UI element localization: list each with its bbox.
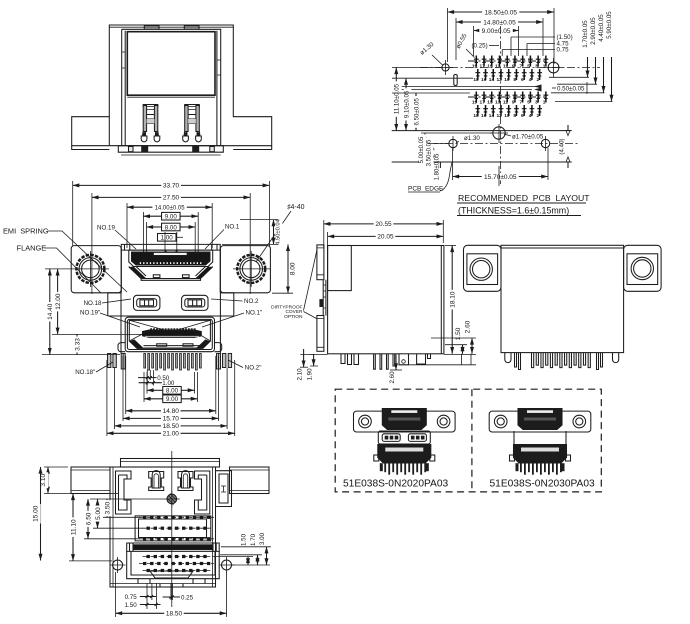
svg-text:15.70: 15.70	[163, 416, 180, 423]
svg-text:18: 18	[473, 113, 479, 119]
svg-text:18: 18	[473, 77, 479, 83]
svg-text:5.00±0.05: 5.00±0.05	[419, 136, 425, 163]
svg-text:(4.40): (4.40)	[559, 138, 566, 154]
svg-text:1.80±0.05: 1.80±0.05	[435, 153, 441, 180]
svg-text:4: 4	[529, 77, 532, 83]
svg-text:18.10: 18.10	[450, 291, 457, 308]
svg-text:17: 17	[480, 63, 486, 69]
svg-text:1.70: 1.70	[250, 533, 257, 546]
svg-text:ø1.30: ø1.30	[464, 135, 480, 142]
svg-text:6: 6	[521, 77, 524, 83]
svg-text:OPTION: OPTION	[284, 314, 303, 320]
svg-text:9.10±0.05: 9.10±0.05	[403, 90, 410, 118]
svg-text:6.50: 6.50	[85, 512, 92, 525]
svg-text:NO.19: NO.19	[97, 225, 115, 232]
svg-text:4: 4	[529, 113, 532, 119]
svg-text:8: 8	[513, 77, 516, 83]
svg-text:♯4-40: ♯4-40	[287, 204, 305, 211]
svg-text:14.80±0.05: 14.80±0.05	[483, 19, 516, 26]
svg-text:33.70: 33.70	[163, 183, 180, 190]
svg-text:FLANGE: FLANGE	[17, 244, 47, 253]
svg-text:2: 2	[537, 113, 540, 119]
svg-text:0.75: 0.75	[557, 47, 570, 54]
svg-text:NO.1": NO.1"	[246, 310, 263, 317]
svg-text:3.50: 3.50	[104, 501, 111, 514]
svg-text:15.70±0.05: 15.70±0.05	[484, 174, 517, 181]
svg-text:8.00: 8.00	[166, 388, 179, 395]
svg-text:5.00: 5.00	[95, 507, 102, 520]
svg-text:17: 17	[480, 99, 486, 105]
svg-text:2: 2	[537, 77, 540, 83]
svg-text:14.80: 14.80	[163, 408, 180, 415]
svg-text:14: 14	[489, 77, 495, 83]
svg-text:NO.1: NO.1	[225, 224, 240, 231]
svg-text:11: 11	[503, 63, 508, 69]
svg-text:1.70±0.05: 1.70±0.05	[582, 20, 589, 48]
svg-text:NO.19": NO.19"	[80, 310, 100, 317]
svg-text:3.10: 3.10	[40, 474, 47, 487]
svg-text:19: 19	[472, 99, 478, 105]
svg-text:21.00: 21.00	[163, 431, 180, 438]
svg-text:1.90: 1.90	[307, 368, 314, 381]
svg-text:10: 10	[504, 77, 510, 83]
svg-text:11.10: 11.10	[70, 519, 77, 535]
svg-text:7: 7	[520, 63, 523, 69]
svg-text:10: 10	[504, 113, 510, 119]
svg-text:8: 8	[513, 113, 516, 119]
svg-text:20.05: 20.05	[377, 234, 394, 241]
svg-text:6: 6	[521, 113, 524, 119]
svg-text:11: 11	[503, 99, 508, 105]
svg-text:13: 13	[495, 63, 501, 69]
svg-text:18.50±0.05: 18.50±0.05	[485, 9, 518, 16]
svg-text:NO.2": NO.2"	[245, 365, 262, 372]
svg-text:18.50: 18.50	[163, 423, 180, 430]
svg-text:15: 15	[487, 99, 493, 105]
svg-text:1: 1	[543, 99, 546, 105]
svg-text:5.90±0.05: 5.90±0.05	[606, 11, 613, 39]
svg-text:2.60: 2.60	[389, 371, 396, 384]
svg-text:1.50: 1.50	[241, 533, 248, 546]
svg-text:4.40±0.05: 4.40±0.05	[598, 14, 605, 42]
svg-text:15.00: 15.00	[33, 505, 40, 522]
svg-text:9.00±0.05: 9.00±0.05	[482, 28, 511, 35]
svg-text:9: 9	[512, 99, 515, 105]
svg-text:ø1.70±0.05: ø1.70±0.05	[512, 134, 544, 141]
svg-text:NO.18": NO.18"	[75, 369, 95, 376]
svg-text:27.50: 27.50	[163, 195, 180, 202]
svg-text:PCB EDGE: PCB EDGE	[408, 186, 444, 193]
svg-text:RECOMMENDED PCB LAYOUT: RECOMMENDED PCB LAYOUT	[458, 193, 590, 203]
svg-text:9: 9	[512, 63, 515, 69]
svg-text:11.10±0.05: 11.10±0.05	[394, 83, 401, 114]
svg-text:20.55: 20.55	[375, 221, 392, 228]
svg-text:2.90±0.05: 2.90±0.05	[590, 17, 597, 45]
svg-text:8.00: 8.00	[290, 262, 297, 275]
svg-text:0.25: 0.25	[181, 594, 194, 601]
svg-text:9.00: 9.00	[165, 214, 178, 221]
svg-text:2.60: 2.60	[465, 320, 472, 333]
svg-text:51E038S-0N2020PA03: 51E038S-0N2020PA03	[343, 479, 448, 490]
svg-text:12.00: 12.00	[55, 293, 62, 310]
svg-text:3: 3	[535, 63, 538, 69]
svg-text:51E038S-0N2030PA03: 51E038S-0N2030PA03	[490, 479, 595, 490]
svg-text:6.50±0.05: 6.50±0.05	[413, 98, 420, 126]
svg-text:7: 7	[520, 99, 523, 105]
svg-text:0.75: 0.75	[125, 594, 138, 601]
svg-text:14.00±0.05: 14.00±0.05	[155, 206, 186, 212]
svg-text:5: 5	[527, 63, 530, 69]
svg-text:14.40: 14.40	[47, 303, 54, 320]
svg-text:4.50±0.04: 4.50±0.04	[276, 218, 282, 245]
svg-text:18.50: 18.50	[166, 611, 183, 618]
svg-text:16: 16	[481, 113, 487, 119]
svg-text:0.50±0.05: 0.50±0.05	[557, 86, 585, 93]
svg-text:3.00: 3.00	[259, 532, 266, 545]
svg-text:16: 16	[481, 77, 487, 83]
svg-text:2.10: 2.10	[297, 368, 304, 381]
svg-text:15: 15	[487, 63, 493, 69]
svg-text:14: 14	[489, 113, 495, 119]
svg-text:NO.2: NO.2	[244, 298, 259, 305]
svg-text:3.33: 3.33	[74, 338, 81, 351]
svg-text:12: 12	[497, 113, 503, 119]
svg-text:13: 13	[495, 99, 501, 105]
svg-text:1.00: 1.00	[161, 235, 174, 242]
svg-text:1: 1	[543, 63, 546, 69]
svg-text:(THICKNESS=1.6±0.15mm): (THICKNESS=1.6±0.15mm)	[458, 206, 569, 216]
svg-text:5: 5	[527, 99, 530, 105]
svg-text:9.00: 9.00	[166, 396, 179, 403]
svg-text:(0.25): (0.25)	[472, 43, 488, 50]
svg-text:12: 12	[497, 77, 503, 83]
svg-text:19: 19	[472, 63, 478, 69]
svg-text:3: 3	[535, 99, 538, 105]
svg-text:EMI SPRING: EMI SPRING	[3, 227, 49, 236]
svg-text:NO.18: NO.18	[84, 300, 102, 307]
svg-text:1.50: 1.50	[125, 602, 138, 609]
svg-text:8.00: 8.00	[165, 224, 178, 231]
